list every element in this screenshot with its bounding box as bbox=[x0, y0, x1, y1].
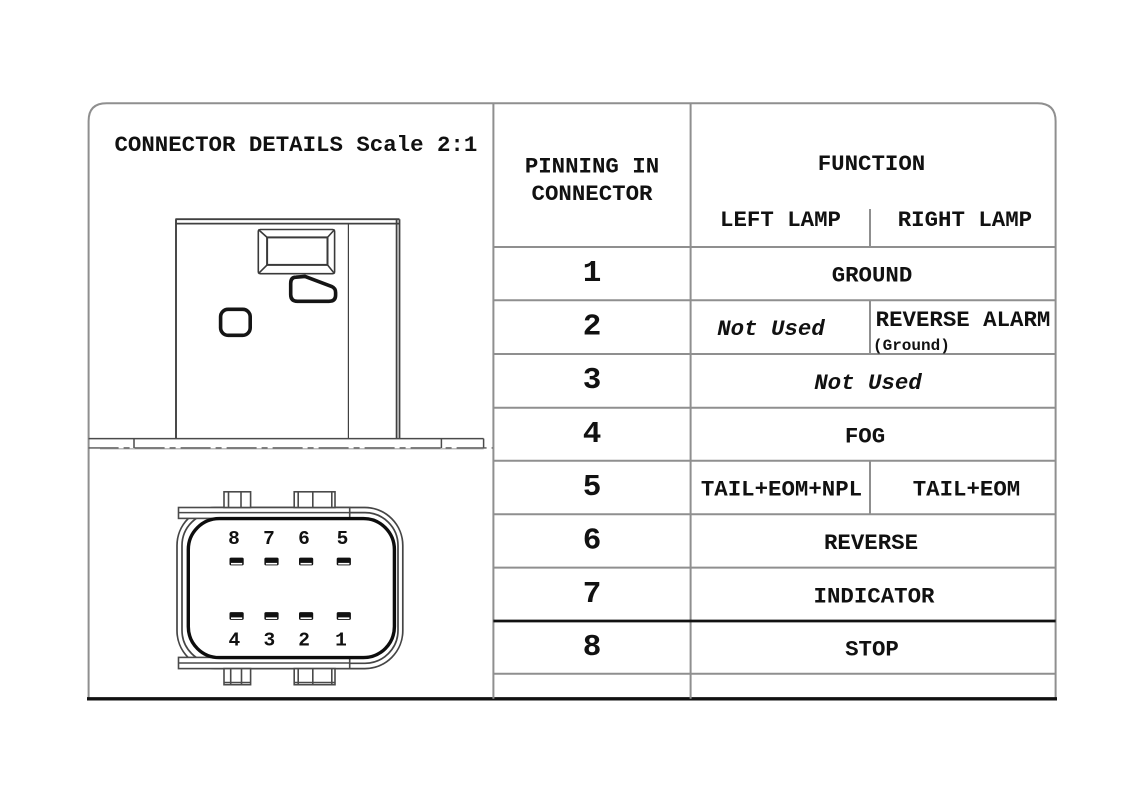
svg-text:4: 4 bbox=[228, 629, 240, 651]
svg-text:RIGHT LAMP: RIGHT LAMP bbox=[898, 207, 1032, 233]
svg-text:7: 7 bbox=[583, 577, 602, 612]
svg-text:(Ground): (Ground) bbox=[873, 337, 950, 355]
svg-text:REVERSE ALARM: REVERSE ALARM bbox=[876, 307, 1051, 333]
svg-text:3: 3 bbox=[263, 629, 275, 651]
svg-text:STOP: STOP bbox=[845, 636, 899, 662]
svg-text:5: 5 bbox=[337, 528, 349, 550]
svg-text:6: 6 bbox=[583, 523, 602, 558]
svg-text:Not Used: Not Used bbox=[814, 370, 922, 396]
svg-text:FOG: FOG bbox=[845, 423, 885, 449]
svg-text:PINNING IN: PINNING IN bbox=[525, 154, 659, 180]
svg-text:GROUND: GROUND bbox=[832, 262, 913, 288]
svg-text:INDICATOR: INDICATOR bbox=[814, 583, 935, 609]
svg-text:1: 1 bbox=[335, 629, 347, 651]
svg-text:5: 5 bbox=[583, 470, 602, 505]
svg-text:8: 8 bbox=[228, 528, 240, 550]
svg-text:REVERSE: REVERSE bbox=[824, 530, 918, 556]
svg-text:8: 8 bbox=[583, 630, 602, 665]
svg-text:CONNECTOR DETAILS Scale 2:1: CONNECTOR DETAILS Scale 2:1 bbox=[115, 132, 478, 158]
svg-text:TAIL+EOM+NPL: TAIL+EOM+NPL bbox=[701, 476, 862, 502]
svg-text:6: 6 bbox=[298, 528, 310, 550]
svg-text:FUNCTION: FUNCTION bbox=[818, 151, 926, 177]
svg-text:2: 2 bbox=[298, 629, 310, 651]
svg-text:Not Used: Not Used bbox=[717, 316, 825, 342]
svg-text:4: 4 bbox=[583, 417, 602, 452]
svg-text:TAIL+EOM: TAIL+EOM bbox=[913, 476, 1021, 502]
svg-text:CONNECTOR: CONNECTOR bbox=[532, 181, 653, 207]
svg-text:2: 2 bbox=[583, 309, 602, 344]
svg-text:LEFT LAMP: LEFT LAMP bbox=[720, 207, 841, 233]
svg-text:3: 3 bbox=[583, 363, 602, 398]
svg-text:1: 1 bbox=[583, 256, 602, 291]
svg-text:7: 7 bbox=[263, 528, 275, 550]
